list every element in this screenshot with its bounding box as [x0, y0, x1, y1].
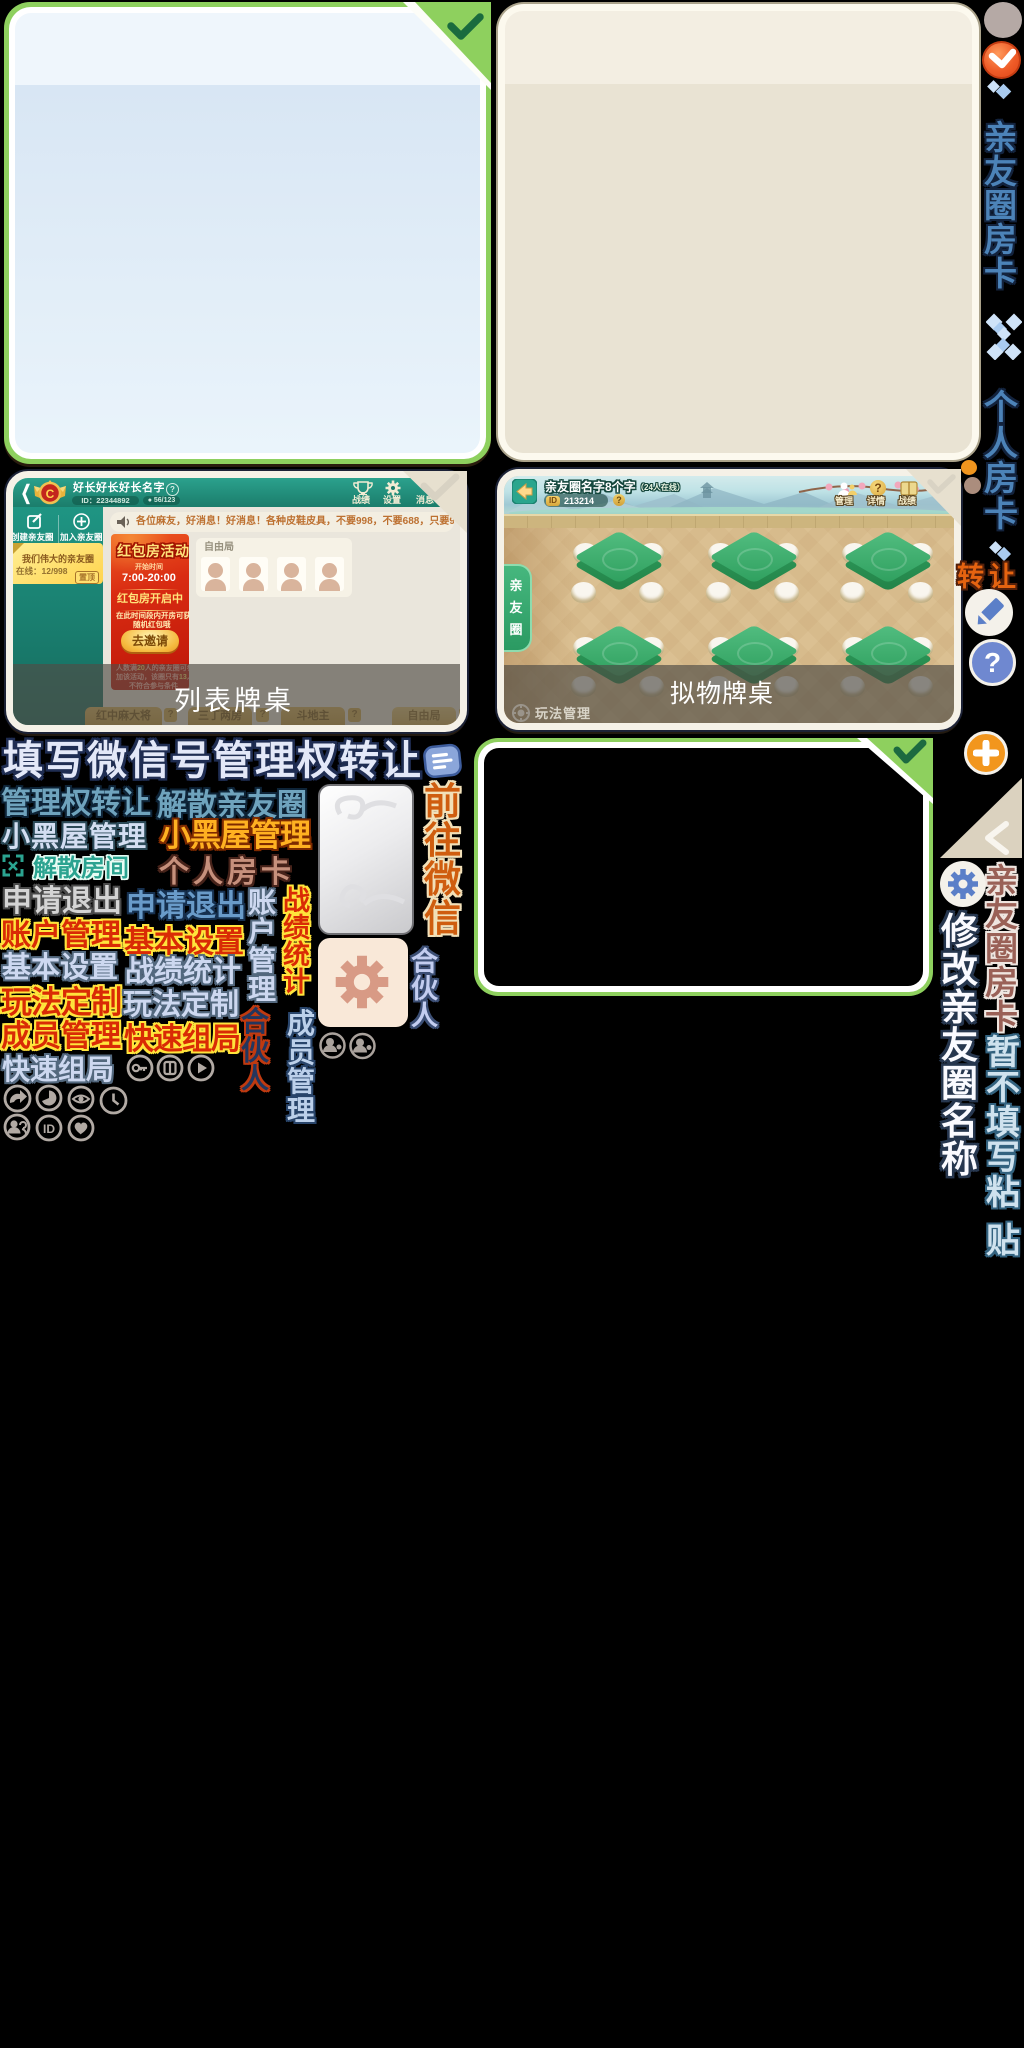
svg-text:ID: ID: [43, 1122, 55, 1136]
svg-text:C: C: [46, 487, 55, 501]
